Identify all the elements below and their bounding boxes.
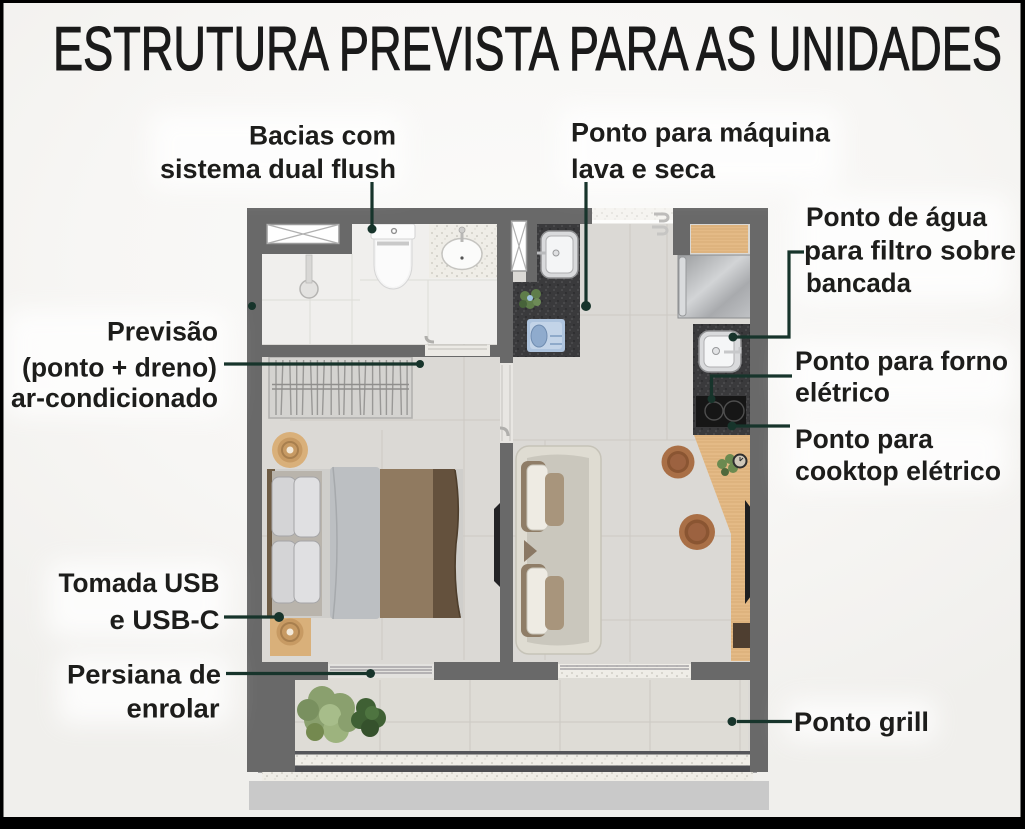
svg-text:ar-condicionado: ar-condicionado: [11, 383, 218, 413]
svg-text:Bacias com: Bacias com: [249, 121, 396, 151]
svg-text:ESTRUTURA PREVISTA PARA AS UNI: ESTRUTURA PREVISTA PARA AS UNIDADES: [53, 15, 1002, 84]
svg-text:Ponto para forno: Ponto para forno: [795, 346, 1008, 376]
svg-text:elétrico: elétrico: [795, 378, 890, 408]
svg-text:(ponto + dreno): (ponto + dreno): [22, 353, 217, 383]
svg-text:Persiana de: Persiana de: [67, 660, 221, 690]
svg-text:Previsão: Previsão: [107, 317, 218, 347]
svg-text:Tomada USB: Tomada USB: [59, 568, 220, 598]
svg-text:bancada: bancada: [806, 268, 912, 298]
svg-text:Ponto para máquina: Ponto para máquina: [571, 118, 831, 148]
svg-text:cooktop elétrico: cooktop elétrico: [795, 456, 1001, 486]
svg-text:e USB-C: e USB-C: [110, 605, 220, 635]
svg-text:enrolar: enrolar: [127, 694, 220, 724]
svg-text:lava e seca: lava e seca: [571, 154, 716, 184]
svg-text:para filtro sobre: para filtro sobre: [804, 236, 1016, 266]
svg-text:Ponto de água: Ponto de água: [806, 202, 988, 232]
svg-text:Ponto grill: Ponto grill: [794, 707, 929, 737]
svg-text:sistema dual flush: sistema dual flush: [160, 154, 396, 184]
svg-text:Ponto para: Ponto para: [795, 424, 934, 454]
